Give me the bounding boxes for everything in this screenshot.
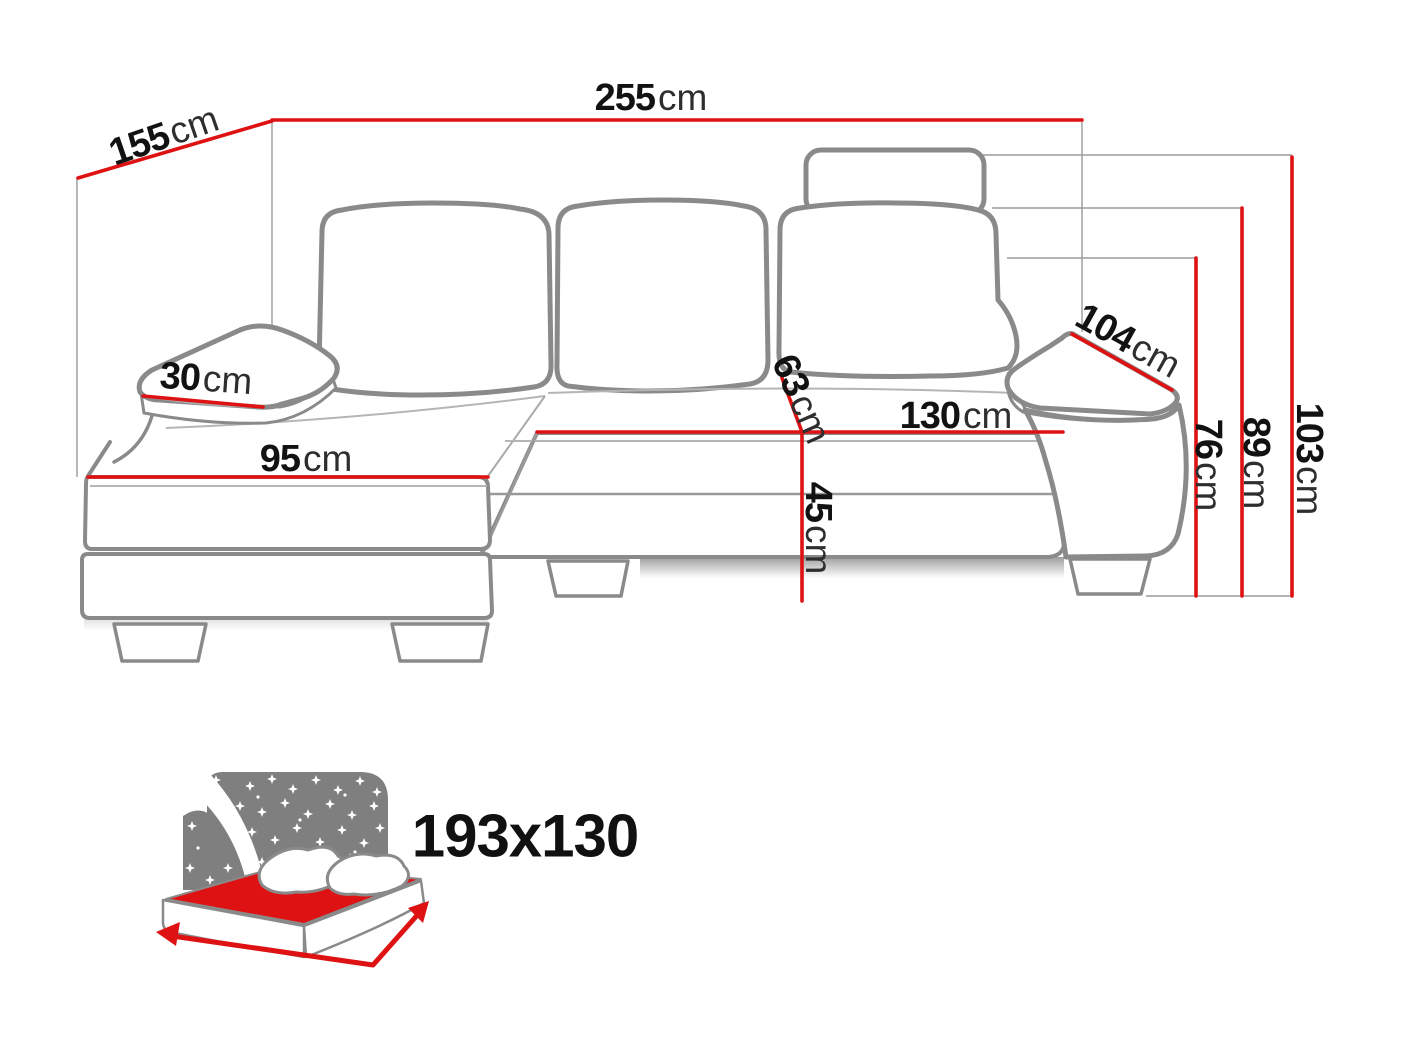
chaise-front-face [85,477,490,549]
diagram-stage: 255cm 155cm 30cm 95cm 63cm 130cm 45cm 10… [0,0,1408,1056]
chaise-base [82,554,492,618]
back-cushion-middle [557,200,768,391]
dim-label-total-width: 255cm [595,79,708,117]
dim-unit: cm [658,77,707,118]
sofa-leg [1070,559,1150,594]
dim-label-armrest-height: 76cm [1189,419,1227,512]
sofa-dimension-drawing [0,0,1408,1056]
sleeping-area-size: 193x130 [412,802,639,871]
dim-label-left-armrest-width: 30cm [158,357,253,401]
dim-value: 45 [797,482,839,522]
dim-value: 255 [595,77,655,119]
dim-label-seat-height: 45cm [799,482,837,575]
dim-label-seat-width: 130cm [900,397,1013,435]
dim-unit: cm [963,395,1012,436]
dim-value: 89 [1235,417,1277,457]
sofa-leg [392,624,488,661]
dim-unit: cm [1236,460,1277,509]
dim-label-backrest-height: 89cm [1237,417,1275,510]
dim-value: 76 [1187,419,1229,459]
dim-label-chaise-width: 95cm [260,440,353,478]
back-cushion-right [779,203,1017,377]
sofa-leg [114,624,206,661]
sofa-leg [548,561,628,596]
dim-value: 130 [900,395,960,437]
dim-value: 103 [1288,403,1330,463]
floor-shadow [640,557,1064,578]
dim-unit: cm [1289,466,1330,515]
dim-unit: cm [1188,462,1229,511]
dim-unit: cm [202,358,254,402]
back-cushion-left [319,203,551,395]
dim-label-total-height: 103cm [1290,403,1328,516]
dim-value: 30 [158,355,201,400]
dim-unit: cm [303,438,352,479]
pillow [327,854,408,895]
dim-unit: cm [798,525,839,574]
sleeping-function-icon [156,772,429,965]
dim-value: 95 [260,438,300,480]
